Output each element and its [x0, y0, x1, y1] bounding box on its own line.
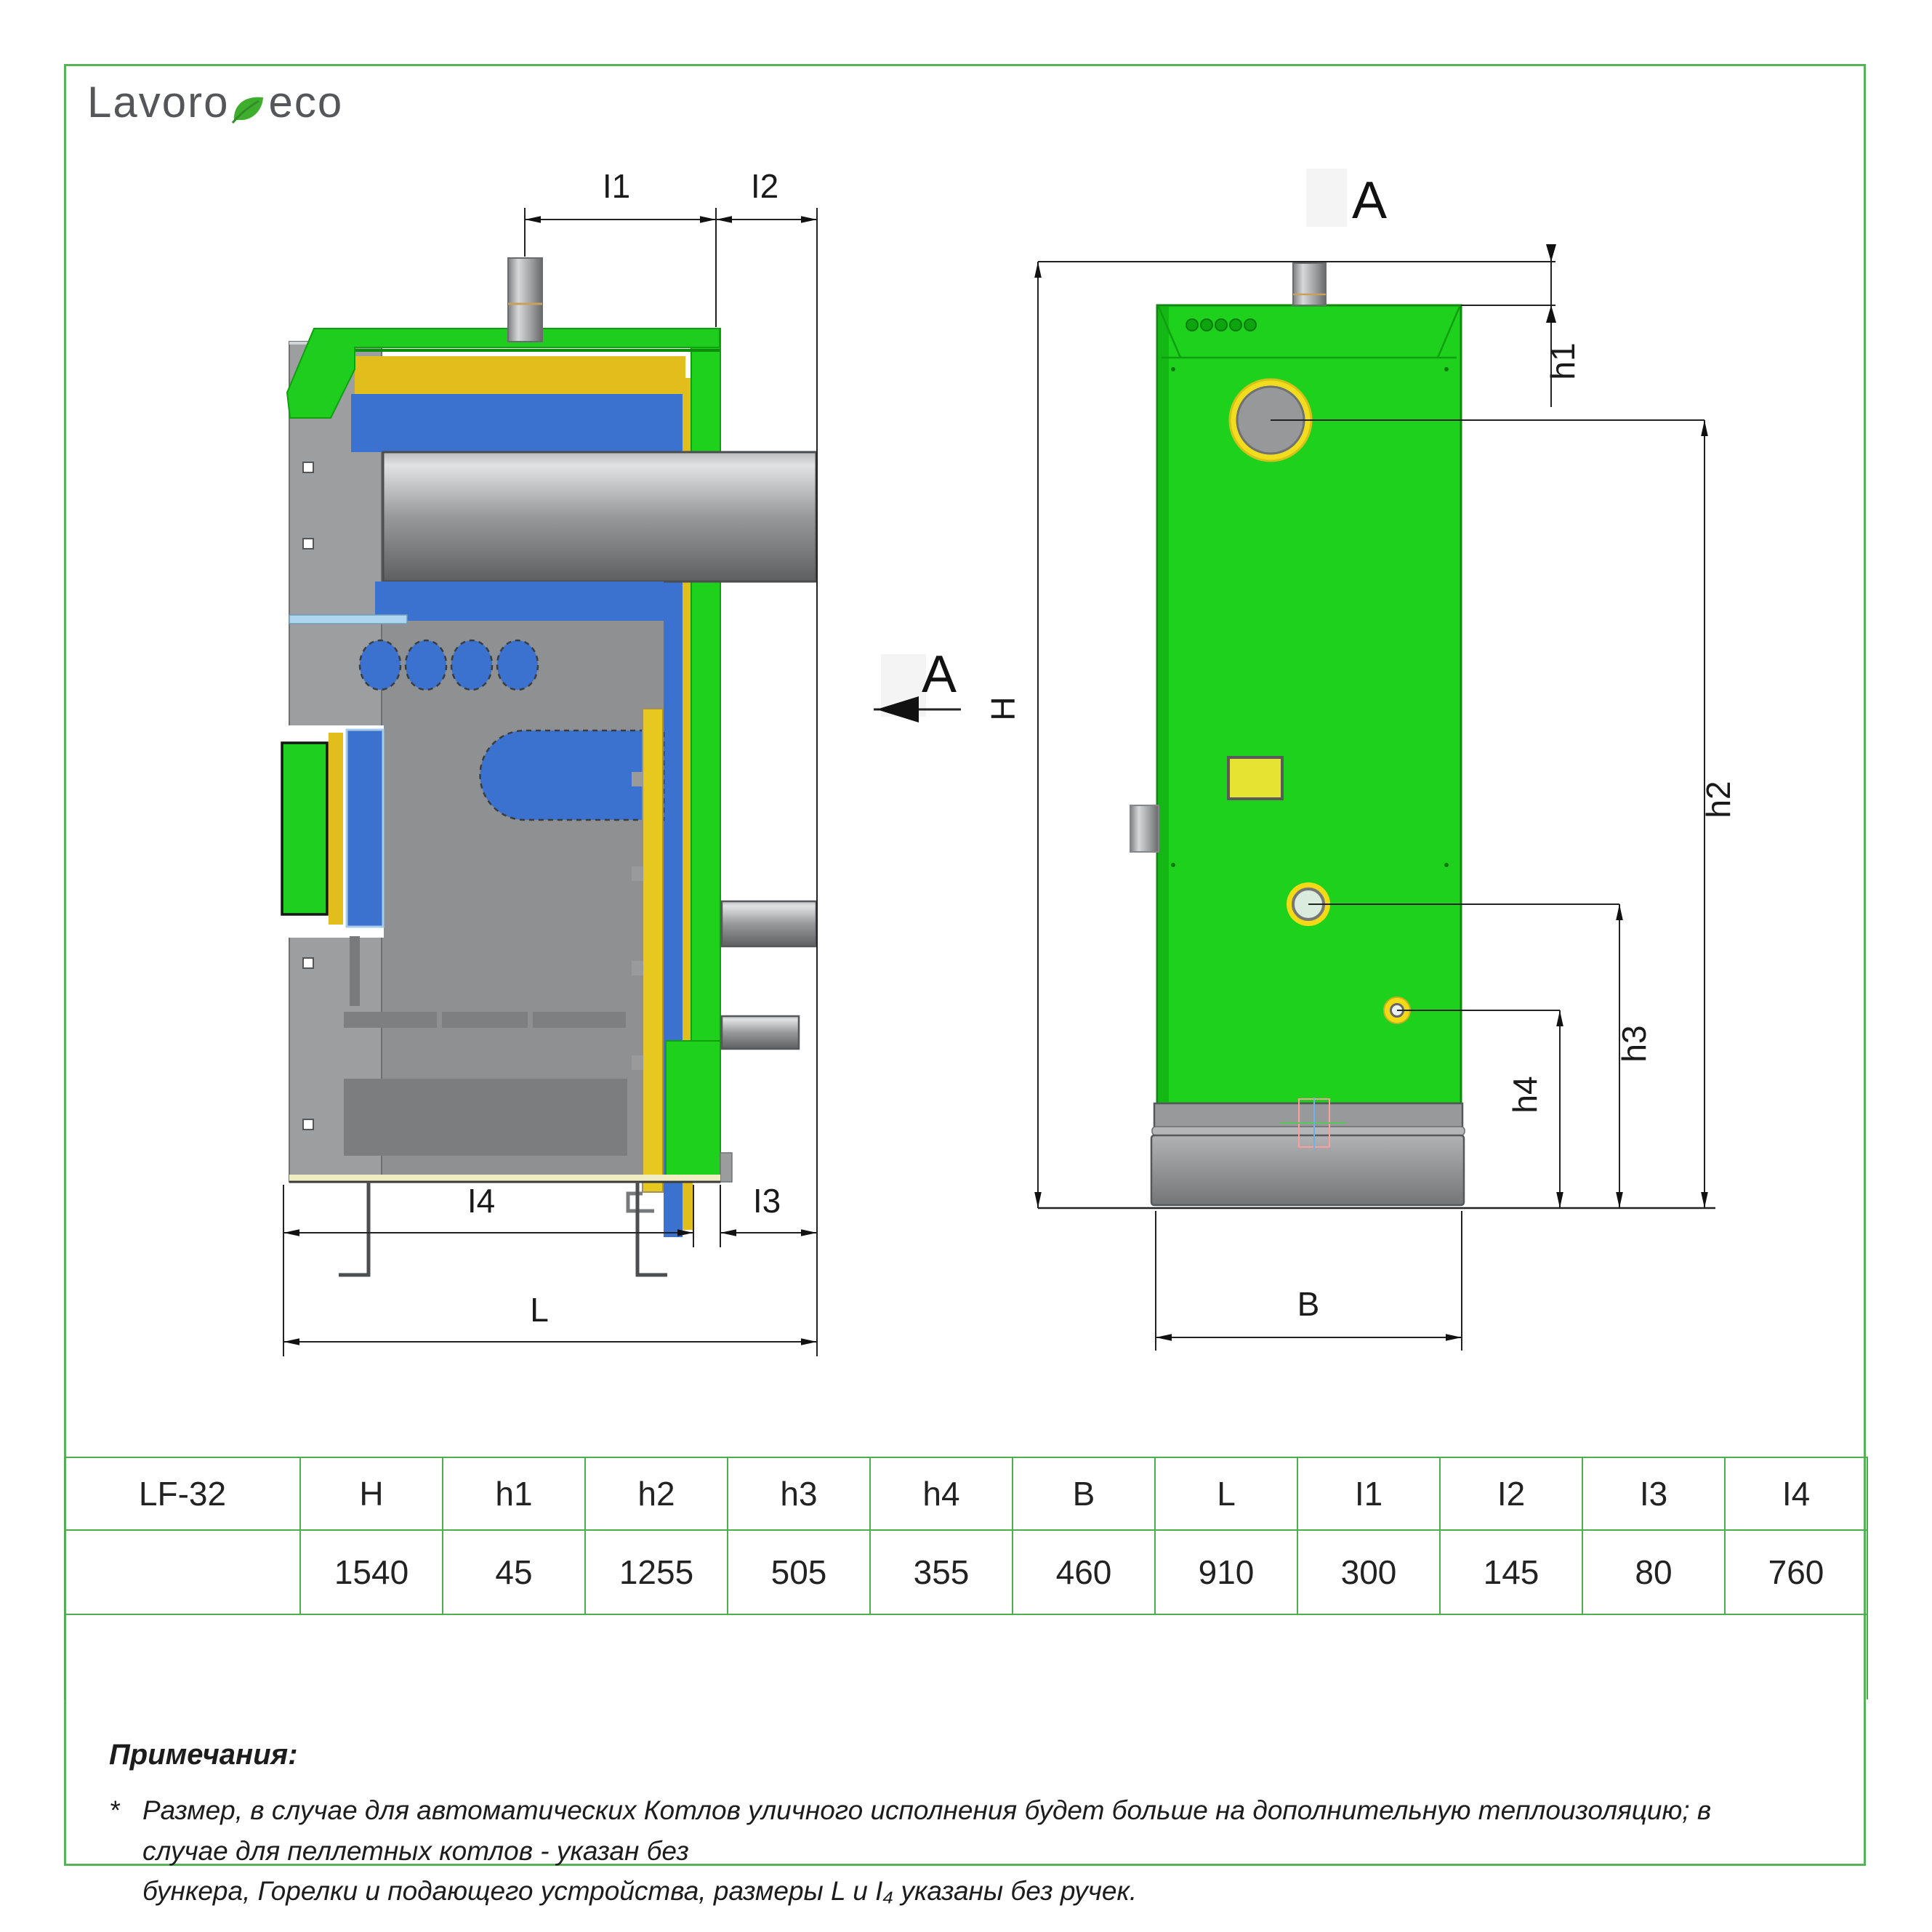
- view-label-shadow: [1306, 169, 1347, 227]
- rear-casing-block: [666, 1041, 720, 1182]
- dimensions-table: LF-32 H h1 h2 h3 h4 B L I1 I2 I3 I4 1540…: [64, 1457, 1868, 1699]
- front-leg: [339, 1182, 369, 1275]
- value-I1: 300: [1297, 1530, 1440, 1614]
- door-insulation: [329, 733, 343, 925]
- dim-label-h2: h2: [1699, 781, 1737, 818]
- dim-label-b: B: [1297, 1285, 1320, 1323]
- model-cell: LF-32: [65, 1457, 300, 1530]
- header-I3: I3: [1582, 1457, 1725, 1530]
- header-h2: h2: [585, 1457, 728, 1530]
- return-connection-pipe: [722, 1016, 799, 1049]
- value-I3: 80: [1582, 1530, 1725, 1614]
- dim-label-h: H: [984, 696, 1022, 720]
- dim-label-h1: h1: [1544, 342, 1582, 379]
- note-item: * Размер, в случае для автоматических Ко…: [109, 1790, 1803, 1912]
- dim-label-i1: I1: [603, 167, 630, 205]
- value-h4: 355: [870, 1530, 1013, 1614]
- grate-bars: [344, 1012, 626, 1028]
- value-I2: 145: [1440, 1530, 1582, 1614]
- flue-pipe: [383, 452, 816, 581]
- ash-drawer: [344, 1079, 627, 1156]
- header-B: B: [1013, 1457, 1155, 1530]
- note-line-2: бункера, Горелки и подающего устройства,…: [142, 1871, 1803, 1912]
- header-I4: I4: [1725, 1457, 1867, 1530]
- top-insulation: [355, 356, 685, 394]
- side-door: [282, 743, 327, 914]
- dim-label-i4: I4: [467, 1182, 495, 1220]
- water-channel-upper: [375, 581, 664, 621]
- header-L: L: [1155, 1457, 1297, 1530]
- dim-label-h3: h3: [1615, 1025, 1653, 1062]
- header-I2: I2: [1440, 1457, 1582, 1530]
- supply-connection-pipe: [722, 901, 816, 946]
- value-L: 910: [1155, 1530, 1297, 1614]
- value-h3: 505: [728, 1530, 870, 1614]
- header-H: H: [300, 1457, 443, 1530]
- chimney-stub-front: [1293, 263, 1326, 305]
- dim-label-i2: I2: [751, 167, 778, 205]
- vent-holes: [1186, 319, 1256, 331]
- base-upper: [1154, 1103, 1462, 1128]
- note-line-1: Размер, в случае для автоматических Котл…: [142, 1790, 1803, 1871]
- front-casing-edge: [1159, 307, 1169, 1102]
- control-panel-plate: [1228, 757, 1282, 799]
- base-lower: [1151, 1135, 1464, 1205]
- dim-label-l: L: [530, 1291, 549, 1329]
- dim-label-i3: I3: [753, 1182, 781, 1220]
- table-empty-row: [65, 1614, 1867, 1699]
- dim-label-h4: h4: [1506, 1076, 1544, 1113]
- ash-door-pin: [350, 936, 360, 1006]
- value-B: 460: [1013, 1530, 1155, 1614]
- h1-arrow-top: [1546, 244, 1556, 262]
- header-I1: I1: [1297, 1457, 1440, 1530]
- rear-leg: [637, 1182, 667, 1275]
- h1-arrow-bottom: [1546, 305, 1556, 323]
- table-header-row: LF-32 H h1 h2 h3 h4 B L I1 I2 I3 I4: [65, 1457, 1867, 1530]
- value-h2: 1255: [585, 1530, 728, 1614]
- chimney-stub-side: [508, 258, 542, 342]
- grate-support: [289, 615, 407, 624]
- notes-section: Примечания: * Размер, в случае для автом…: [109, 1739, 1803, 1912]
- lining-bottom-hook: [628, 1194, 654, 1211]
- notes-title: Примечания:: [109, 1739, 1803, 1771]
- value-h1: 45: [443, 1530, 585, 1614]
- side-section-view: I1 I2 I4 I3 L A: [281, 167, 961, 1356]
- side-pipe-stub: [1130, 805, 1159, 852]
- value-H: 1540: [300, 1530, 443, 1614]
- table-value-row: 1540 45 1255 505 355 460 910 300 145 80 …: [65, 1530, 1867, 1614]
- inner-lining: [643, 709, 663, 1192]
- note-text: Размер, в случае для автоматических Котл…: [142, 1790, 1803, 1912]
- view-label: A: [1352, 172, 1387, 230]
- note-marker: *: [109, 1790, 142, 1912]
- value-I4: 760: [1725, 1530, 1867, 1614]
- rear-step: [720, 1153, 732, 1182]
- boiler-dimensions-sheet: Lavoro eco: [0, 0, 1932, 1932]
- header-h3: h3: [728, 1457, 870, 1530]
- door-water-panel: [347, 730, 383, 927]
- section-label: A: [922, 645, 957, 704]
- model-value-cell: [65, 1530, 300, 1614]
- empty-cell: [65, 1614, 1867, 1699]
- top-water-jacket: [351, 394, 665, 452]
- base-bevel: [1152, 1127, 1465, 1135]
- header-h4: h4: [870, 1457, 1013, 1530]
- front-view: A: [984, 169, 1737, 1351]
- boiler-technical-drawing: I1 I2 I4 I3 L A A: [0, 0, 1932, 1454]
- header-h1: h1: [443, 1457, 585, 1530]
